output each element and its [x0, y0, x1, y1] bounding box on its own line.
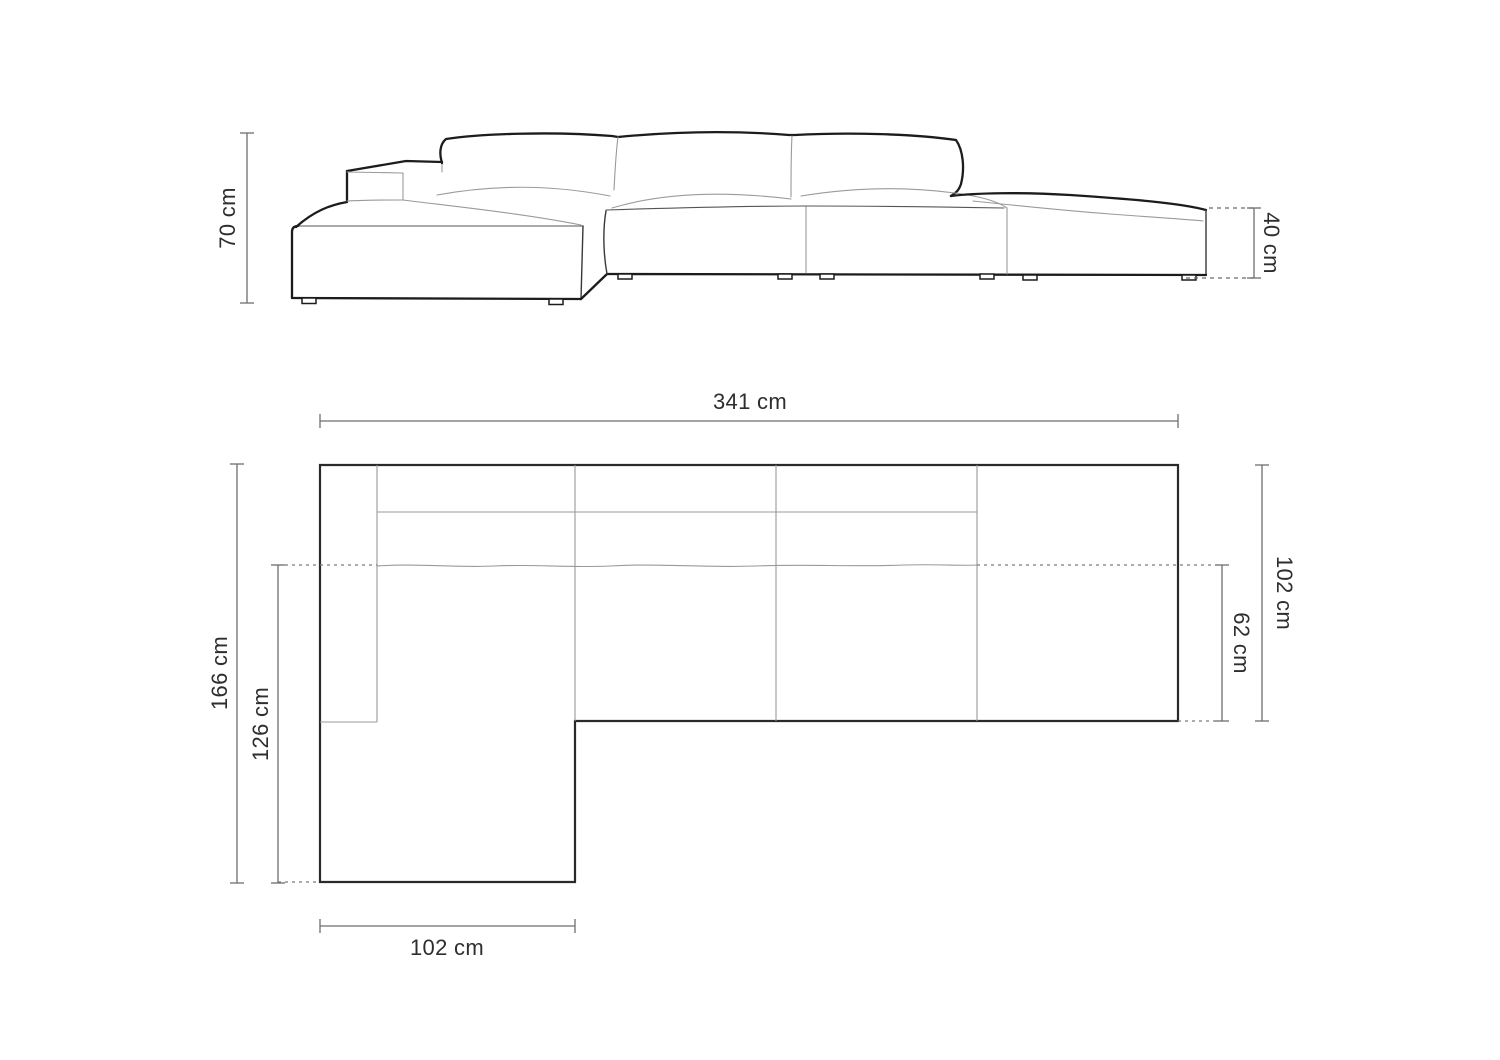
plan-chaise-depth-label: 126 cm — [248, 687, 274, 761]
elevation-height-label: 70 cm — [215, 187, 241, 248]
plan-view-drawing — [320, 465, 1178, 882]
dimension-lines — [230, 133, 1269, 933]
plan-chaise-width-label: 102 cm — [410, 935, 484, 961]
plan-total-width-label: 341 cm — [713, 389, 787, 415]
sofa-line-art — [0, 0, 1500, 1060]
elevation-view-drawing — [292, 132, 1206, 304]
elevation-seat-height-label: 40 cm — [1258, 212, 1284, 273]
plan-body-depth-label: 102 cm — [1271, 556, 1297, 630]
plan-total-depth-label: 166 cm — [207, 636, 233, 710]
sofa-technical-drawing: 70 cm 40 cm 341 cm 166 cm 126 cm 102 cm … — [0, 0, 1500, 1060]
plan-seat-depth-label: 62 cm — [1228, 612, 1254, 673]
sofa-legs — [302, 274, 1196, 305]
